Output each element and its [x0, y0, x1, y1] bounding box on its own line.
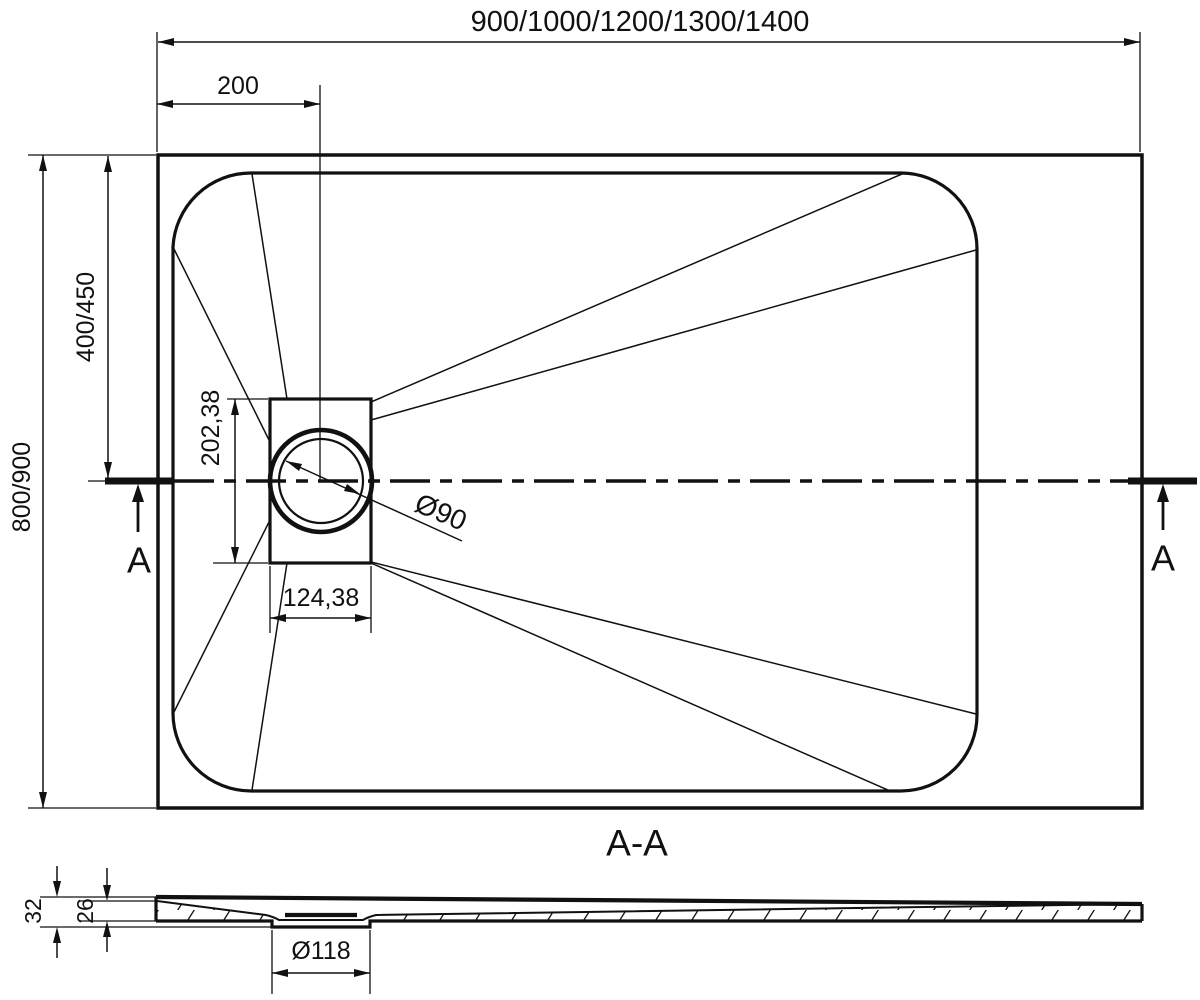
dimension-flange-diameter: Ø118	[272, 930, 370, 994]
section-letter-left: A	[127, 540, 151, 581]
overall-depth-label: 800/900	[8, 442, 36, 532]
overall-width-label: 900/1000/1200/1300/1400	[471, 6, 810, 38]
section-arrow-left-icon	[132, 484, 144, 502]
section-arrow-right-icon	[1157, 484, 1169, 502]
section-marker-left-group: A	[127, 484, 151, 581]
dimension-drain-diameter: Ø90	[286, 461, 471, 541]
dimension-inner-height: 26	[72, 868, 157, 952]
inner-height-label: 26	[72, 898, 98, 924]
drain-box-width-label: 124,38	[283, 584, 359, 612]
shower-tray-technical-drawing: A A 900/1000/1200/1300/1400 200	[0, 0, 1200, 1000]
total-height-label: 32	[20, 898, 46, 924]
drain-diameter-label: Ø90	[411, 487, 472, 536]
section-letter-right: A	[1151, 538, 1175, 579]
half-depth-label: 400/450	[72, 272, 100, 362]
section-view: A-A 32	[20, 823, 1142, 995]
dimension-overall-width: 900/1000/1200/1300/1400	[157, 6, 1140, 152]
top-view: A A 900/1000/1200/1300/1400 200	[8, 6, 1197, 808]
drain-offset-label: 200	[217, 72, 259, 100]
dimension-drain-offset: 200	[157, 72, 320, 481]
dimension-half-depth: 400/450	[72, 156, 112, 478]
flange-diameter-label: Ø118	[291, 937, 350, 965]
drain-box-height-label: 202,38	[197, 390, 225, 466]
technical-drawing-page: A A 900/1000/1200/1300/1400 200	[0, 0, 1200, 1000]
section-marker-right-group: A	[1151, 484, 1175, 579]
section-title: A-A	[606, 823, 668, 864]
